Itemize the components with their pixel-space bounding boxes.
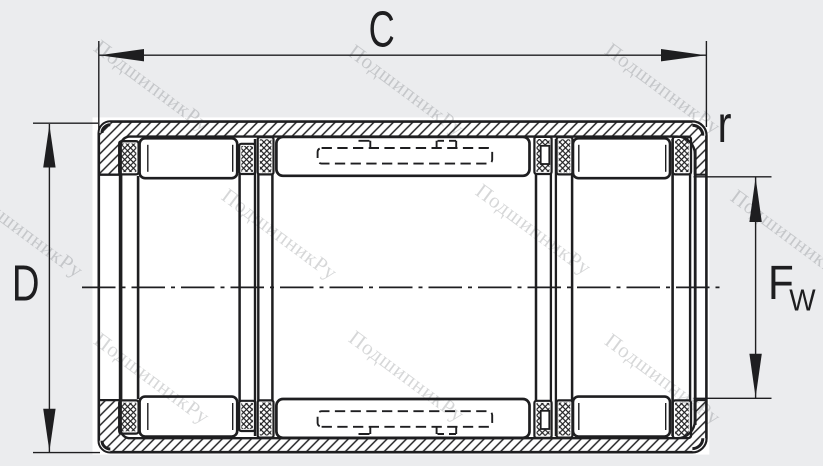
svg-text:D: D (12, 254, 40, 312)
svg-text:W: W (789, 283, 815, 318)
